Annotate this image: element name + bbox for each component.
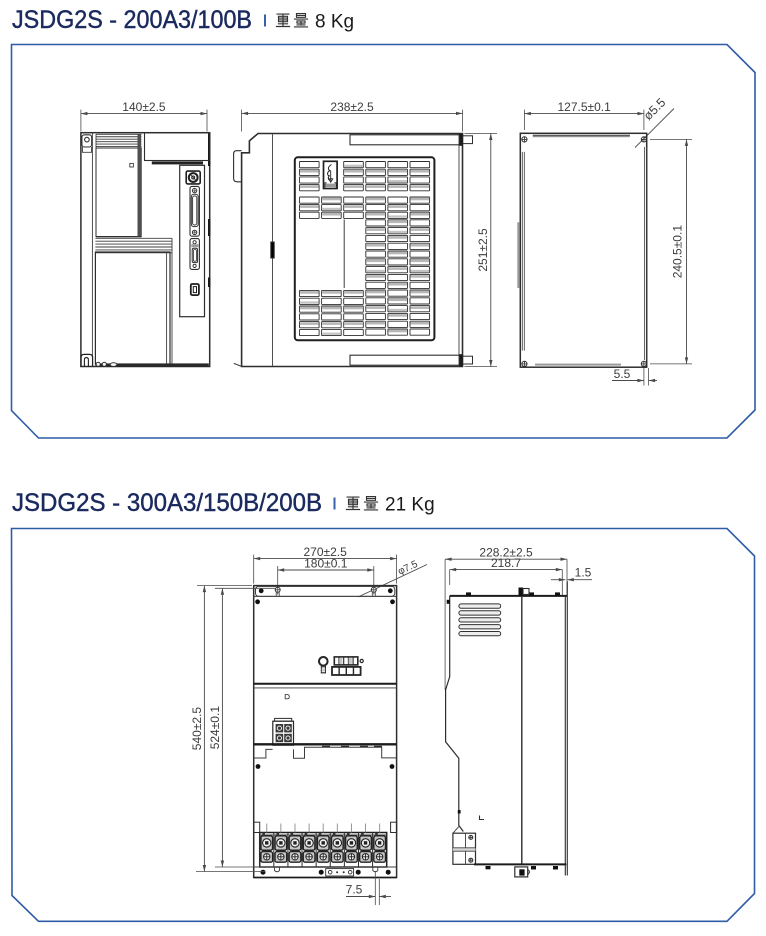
svg-text:540±2.5: 540±2.5 (190, 707, 204, 751)
svg-text:127.5±0.1: 127.5±0.1 (558, 100, 612, 114)
svg-text:238±2.5: 238±2.5 (330, 100, 374, 114)
svg-text:7.5: 7.5 (346, 883, 363, 897)
svg-text:524±0.1: 524±0.1 (208, 706, 222, 750)
svg-text:1.5: 1.5 (575, 566, 592, 580)
svg-text:5.5: 5.5 (614, 367, 631, 381)
svg-text:8 Kg: 8 Kg (315, 12, 354, 33)
svg-text:JSDG2S - 300A3/150B/200B: JSDG2S - 300A3/150B/200B (12, 489, 322, 517)
svg-text:251±2.5: 251±2.5 (476, 228, 490, 272)
svg-text:240.5±0.1: 240.5±0.1 (671, 225, 685, 279)
svg-text:JSDG2S - 200A3/100B: JSDG2S - 200A3/100B (12, 6, 252, 34)
svg-text:140±2.5: 140±2.5 (122, 100, 166, 114)
svg-text:21 Kg: 21 Kg (385, 495, 435, 516)
svg-text:180±0.1: 180±0.1 (304, 557, 348, 571)
svg-text:218.7: 218.7 (491, 556, 521, 570)
